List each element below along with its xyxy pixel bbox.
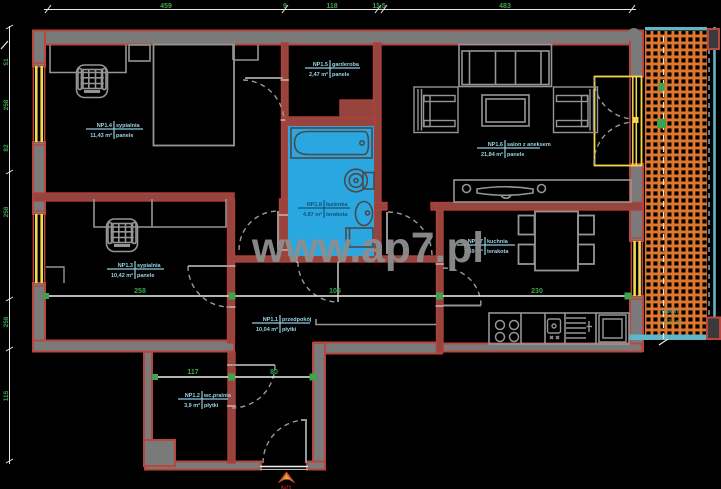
svg-text:terakota: terakota — [487, 249, 509, 255]
svg-text:115: 115 — [3, 390, 10, 401]
svg-text:483: 483 — [499, 3, 511, 10]
svg-text:10,04 m²: 10,04 m² — [256, 326, 278, 333]
svg-text:panele: panele — [507, 152, 524, 158]
svg-text:4,87 m²: 4,87 m² — [303, 211, 322, 218]
svg-text:NP1.5: NP1.5 — [313, 62, 328, 68]
svg-text:panele: panele — [137, 273, 154, 279]
svg-text:NP1.3: NP1.3 — [118, 263, 133, 269]
svg-text:www.ap7.pl: www.ap7.pl — [251, 225, 484, 272]
svg-text:9: 9 — [283, 3, 287, 10]
svg-text:panele: panele — [332, 72, 349, 78]
svg-text:łazienka: łazienka — [326, 202, 348, 208]
svg-text:82: 82 — [3, 144, 10, 152]
svg-text:117: 117 — [187, 369, 198, 376]
svg-text:NP1.6: NP1.6 — [488, 142, 503, 148]
svg-text:panele: panele — [116, 133, 133, 139]
svg-text:5,31 m²: 5,31 m² — [664, 319, 683, 325]
svg-text:258: 258 — [134, 288, 146, 295]
svg-text:wc,pralnia: wc,pralnia — [203, 393, 232, 399]
svg-text:51: 51 — [3, 58, 10, 66]
svg-text:230: 230 — [531, 288, 543, 295]
svg-text:105: 105 — [329, 288, 341, 295]
svg-text:terakota: terakota — [326, 212, 348, 218]
svg-text:sypialnia: sypialnia — [137, 263, 161, 269]
svg-text:salon z aneksem: salon z aneksem — [507, 142, 551, 148]
svg-text:NP1.1: NP1.1 — [263, 317, 278, 323]
svg-text:przedpokój: przedpokój — [282, 317, 312, 323]
svg-text:258: 258 — [3, 316, 10, 327]
svg-text:80: 80 — [270, 369, 278, 376]
svg-text:2,47 m²: 2,47 m² — [309, 71, 328, 78]
svg-text:kuchnia: kuchnia — [487, 239, 509, 245]
svg-text:NP1.8: NP1.8 — [307, 202, 322, 208]
svg-text:balkon: balkon — [662, 309, 678, 315]
svg-text:258: 258 — [3, 206, 10, 217]
svg-text:NP1.2: NP1.2 — [185, 393, 200, 399]
svg-text:płytki: płytki — [204, 403, 219, 409]
svg-text:sypialnia: sypialnia — [116, 123, 140, 129]
svg-text:garderoba: garderoba — [332, 62, 360, 68]
svg-text:459: 459 — [160, 3, 172, 10]
svg-text:11,43 m²: 11,43 m² — [90, 132, 112, 139]
svg-text:3,9 m²: 3,9 m² — [184, 402, 200, 409]
svg-text:21,84 m²: 21,84 m² — [481, 151, 503, 158]
svg-text:118: 118 — [326, 3, 337, 10]
svg-text:258: 258 — [3, 99, 10, 110]
svg-text:11,5: 11,5 — [372, 3, 385, 10]
svg-text:płytki: płytki — [282, 327, 297, 333]
svg-text:N/1: N/1 — [281, 486, 292, 489]
svg-text:NP1.4: NP1.4 — [97, 123, 113, 129]
svg-text:10,42 m²: 10,42 m² — [111, 272, 133, 279]
